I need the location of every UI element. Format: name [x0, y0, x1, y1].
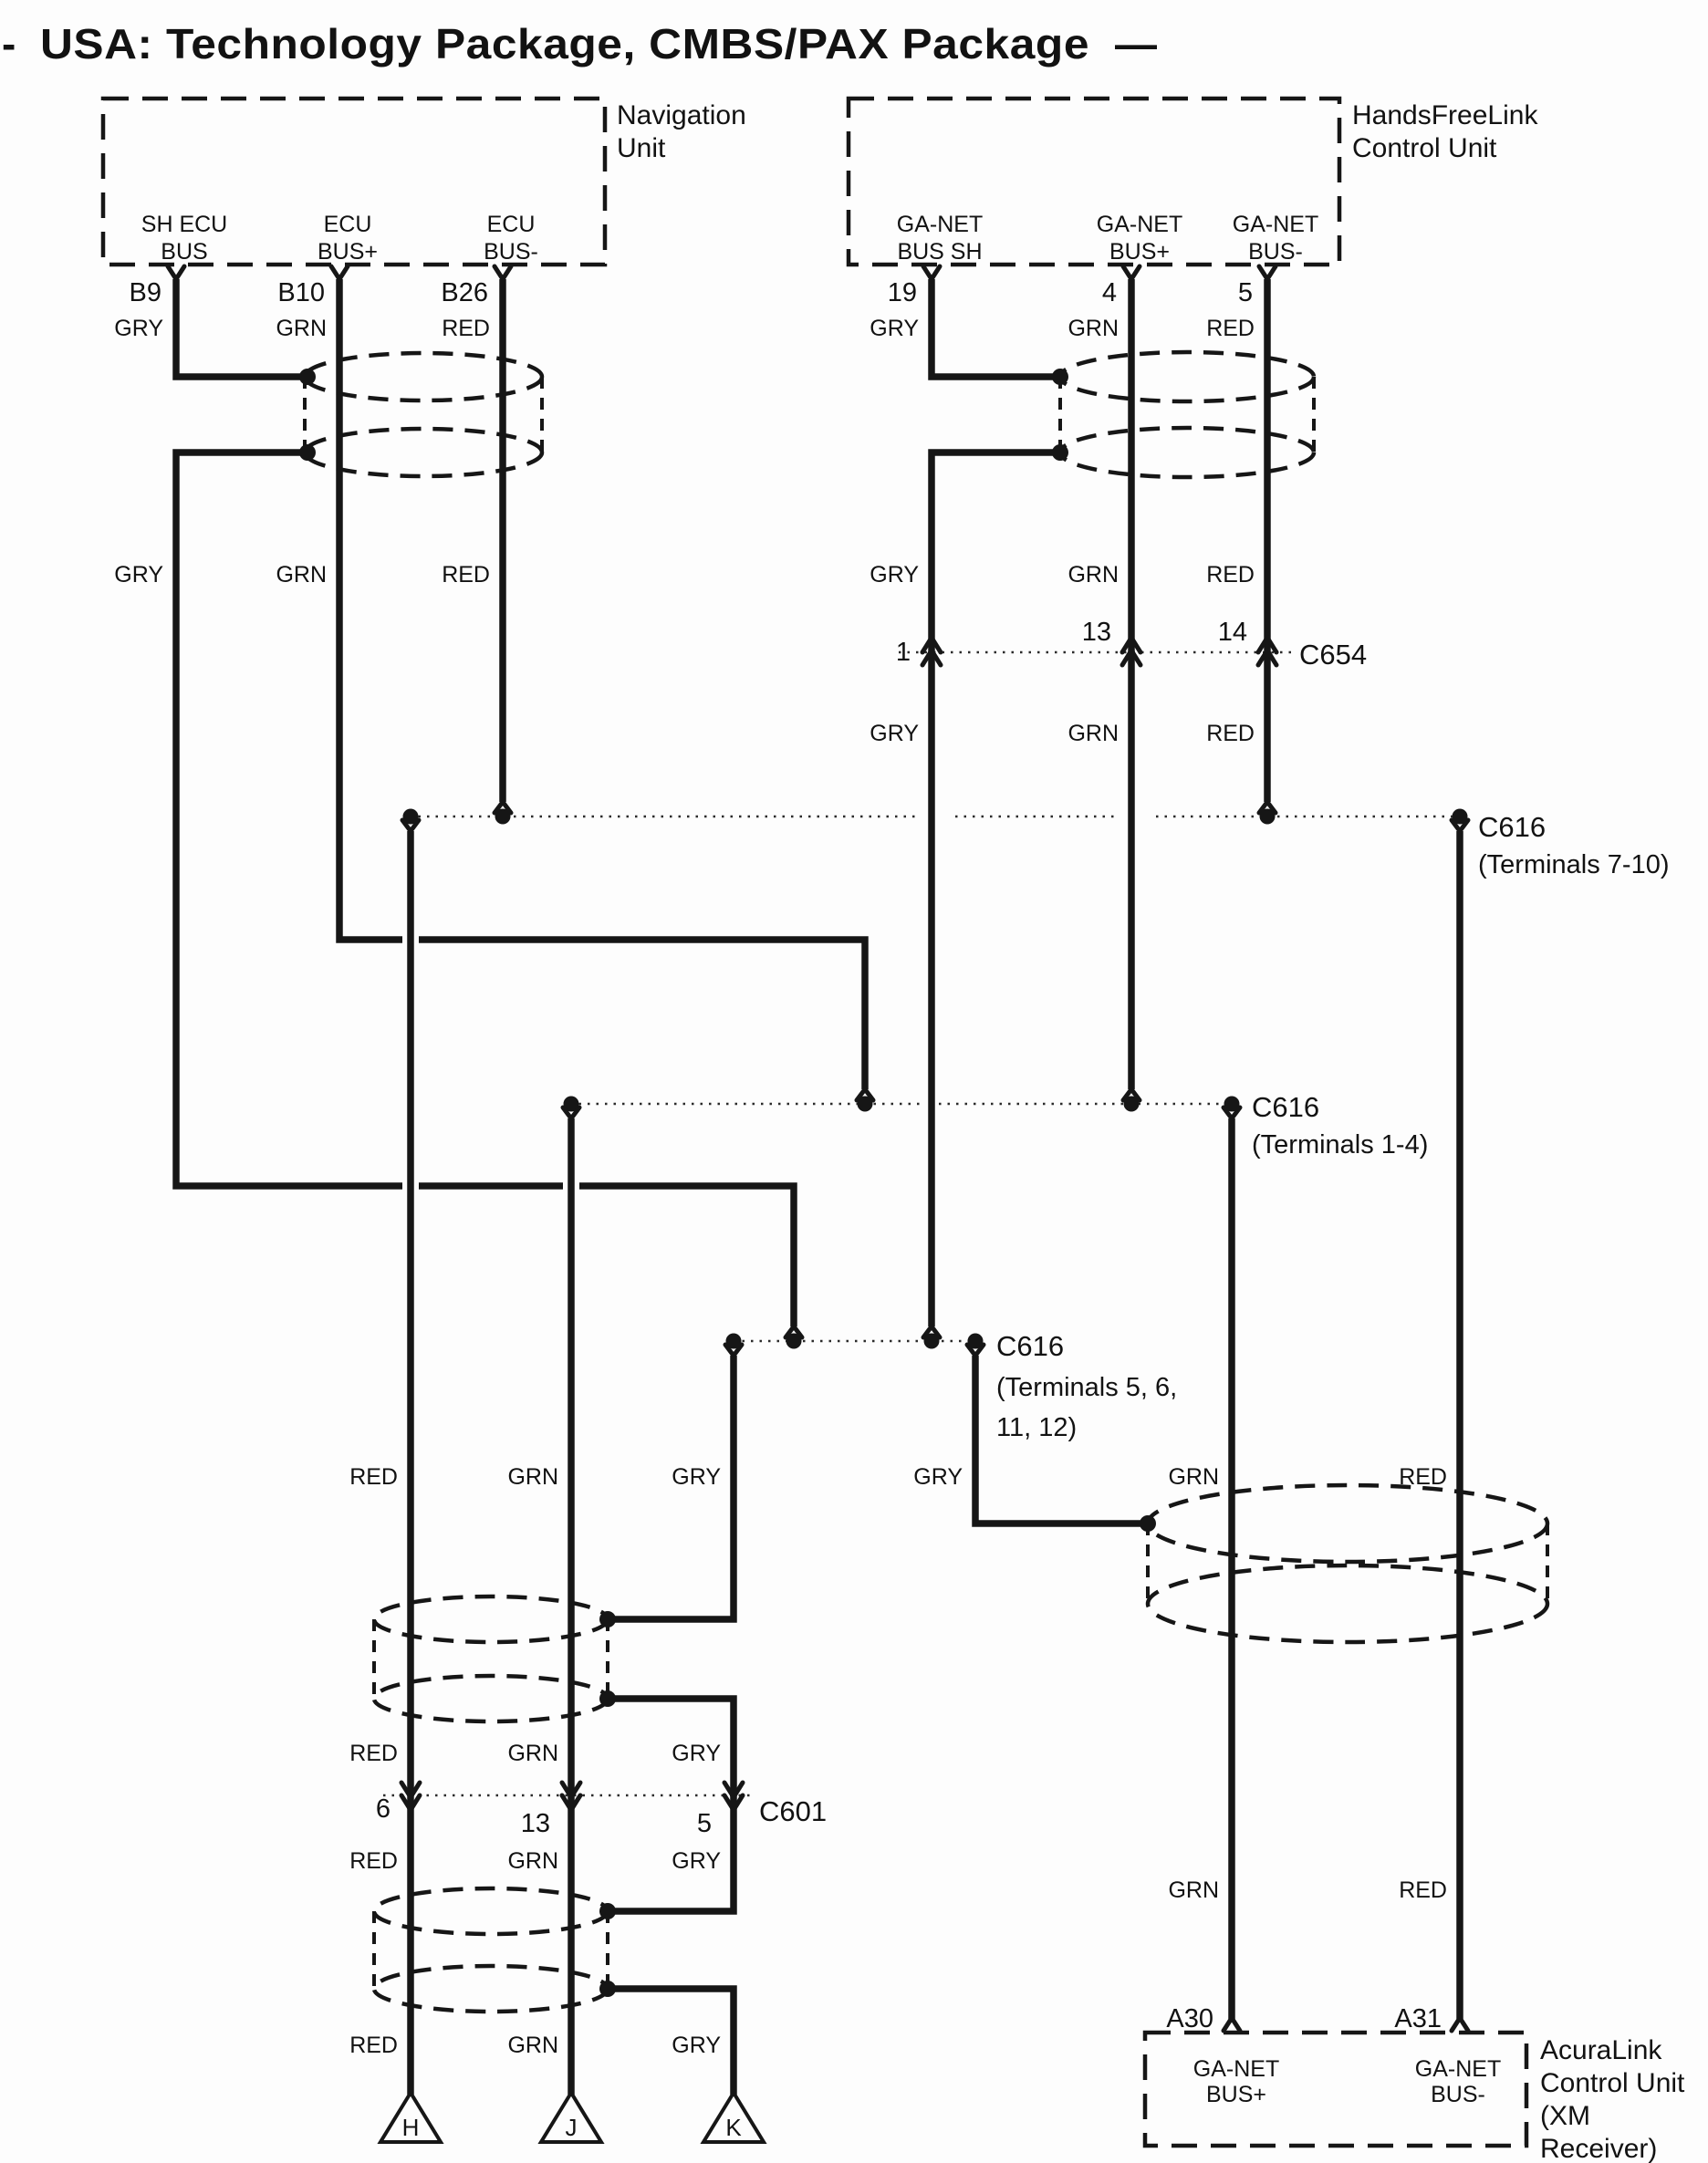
wire-color-label: RED — [1206, 316, 1255, 341]
nav-pin-b9-bus-line2: BUS — [161, 239, 207, 265]
wiring-diagram-page: - USA: Technology Package, CMBS/PAX Pack… — [0, 0, 1708, 2163]
wiring-diagram: - USA: Technology Package, CMBS/PAX Pack… — [0, 0, 1708, 2163]
acuralink-pin-a30: A30 — [1166, 2004, 1213, 2033]
ground-triangle-h-label: H — [402, 2114, 420, 2141]
c616-red-terminals: (Terminals 7-10) — [1478, 850, 1670, 879]
wire-gry-handsfreelink-shield — [932, 279, 1056, 1326]
ground-triangle-k-label: K — [725, 2114, 742, 2141]
c654-label: C654 — [1299, 639, 1367, 671]
c616-gry-terminals-line2: 11, 12) — [996, 1413, 1077, 1442]
wire-color-label: GRN — [276, 562, 327, 588]
acuralink-name-line2: Control Unit — [1540, 2068, 1685, 2098]
wire-color-label: GRY — [672, 1464, 721, 1490]
c601-label: C601 — [759, 1795, 827, 1827]
hfl-pin-19-bus-line2: BUS SH — [897, 239, 982, 265]
wire-color-label: GRN — [276, 316, 327, 341]
wire-color-label: GRN — [1067, 316, 1119, 341]
wire-color-label: GRN — [1168, 1464, 1219, 1490]
nav-pin-b26: B26 — [441, 278, 488, 307]
acuralink-a30-bus-line2: BUS+ — [1206, 2082, 1266, 2107]
ground-triangle-h: H — [380, 2093, 441, 2142]
acuralink-a31-bus-line2: BUS- — [1431, 2082, 1485, 2107]
navigation-unit-name-line1: Navigation — [617, 100, 746, 130]
acuralink-a31-bus-line1: GA-NET — [1415, 2056, 1501, 2082]
wire-color-label: GRN — [507, 1848, 558, 1874]
acuralink-pin-a31: A31 — [1394, 2004, 1442, 2033]
wire-color-label: RED — [1206, 562, 1255, 588]
wire-color-label: GRY — [672, 2033, 721, 2058]
wire-color-label: GRY — [870, 316, 919, 341]
acuralink-unit: A30 A31 GA-NET BUS+ GA-NET BUS- AcuraLin… — [1145, 2004, 1685, 2163]
c654-pin-13: 13 — [1082, 618, 1111, 647]
wire-color-label: GRN — [507, 1741, 558, 1766]
wire-color-label: RED — [349, 1848, 398, 1874]
hfl-unit-name-line2: Control Unit — [1352, 133, 1497, 163]
title-prefix-dash: - — [2, 20, 16, 68]
nav-pin-b10-bus-line1: ECU — [324, 212, 372, 237]
hfl-pin-19-bus-line1: GA-NET — [897, 212, 983, 237]
ground-triangle-k: K — [703, 2093, 764, 2142]
nav-pin-b26-bus-line1: ECU — [487, 212, 536, 237]
c601-pin-6: 6 — [376, 1794, 391, 1824]
hfl-unit-name-line1: HandsFreeLink — [1352, 100, 1538, 130]
connector-c616-grn: C616 (Terminals 1-4) — [1252, 1091, 1428, 1159]
c616-grn-terminals: (Terminals 1-4) — [1252, 1130, 1428, 1159]
hfl-pin-5: 5 — [1238, 278, 1253, 307]
hfl-pin-4: 4 — [1102, 278, 1117, 307]
acuralink-name-line3: (XM — [1540, 2101, 1590, 2131]
connector-c601: 6 13 5 C601 — [376, 1794, 827, 1838]
connector-c616-red: C616 (Terminals 7-10) — [1478, 811, 1670, 879]
hfl-pin-19: 19 — [888, 278, 917, 307]
title: - USA: Technology Package, CMBS/PAX Pack… — [2, 20, 1158, 68]
wire-color-label: GRN — [507, 1464, 558, 1490]
c601-pin-5: 5 — [697, 1809, 712, 1838]
wire-color-label: GRY — [114, 562, 163, 588]
wire-color-label: GRN — [1067, 562, 1119, 588]
wire-color-label: GRY — [870, 562, 919, 588]
nav-pin-b10: B10 — [277, 278, 325, 307]
wire-color-label: GRY — [114, 316, 163, 341]
hfl-pin-5-bus-line1: GA-NET — [1233, 212, 1318, 237]
c654-pin-14: 14 — [1218, 618, 1247, 647]
connector-c616-gry: C616 (Terminals 5, 6, 11, 12) — [996, 1330, 1177, 1442]
nav-pin-b9: B9 — [130, 278, 161, 307]
c616-gry-terminals-line1: (Terminals 5, 6, — [996, 1373, 1177, 1402]
nav-pin-b26-bus-line2: BUS- — [484, 239, 538, 265]
wire-color-label: RED — [1399, 1464, 1447, 1490]
acuralink-name-line1: AcuraLink — [1540, 2035, 1662, 2065]
c616-gry-label: C616 — [996, 1330, 1064, 1362]
wire-color-label: GRN — [507, 2033, 558, 2058]
acuralink-a30-bus-line1: GA-NET — [1193, 2056, 1279, 2082]
nav-pin-b10-bus-line2: BUS+ — [318, 239, 378, 265]
wire-color-label: RED — [349, 1464, 398, 1490]
navigation-unit: Navigation Unit SH ECU BUS ECU BUS+ ECU … — [103, 99, 746, 307]
wire-color-label: RED — [442, 316, 490, 341]
junction-glyphs — [402, 802, 1468, 1356]
ground-triangle-j-label: J — [566, 2114, 578, 2141]
acuralink-name-line4: Receiver) — [1540, 2134, 1657, 2163]
nav-pin-b9-bus-line1: SH ECU — [141, 212, 227, 237]
wire-gry-navigation-shield — [176, 279, 794, 1326]
c616-red-label: C616 — [1478, 811, 1546, 843]
wire-color-label: GRY — [672, 1741, 721, 1766]
hfl-pin-4-bus-line2: BUS+ — [1109, 239, 1170, 265]
wire-color-label: GRN — [1168, 1877, 1219, 1903]
wire-color-label: GRY — [672, 1848, 721, 1874]
handsfreelink-unit: HandsFreeLink Control Unit GA-NET BUS SH… — [849, 99, 1538, 307]
title-suffix-dash: — — [1115, 20, 1158, 68]
wire-color-label: GRN — [1067, 721, 1119, 746]
wire-color-label: RED — [349, 1741, 398, 1766]
navigation-unit-name-line2: Unit — [617, 133, 666, 163]
c601-pin-13: 13 — [521, 1809, 550, 1838]
hfl-pin-4-bus-line1: GA-NET — [1097, 212, 1182, 237]
shield-drum-handsfreelink — [1052, 352, 1314, 477]
wire-color-label: GRY — [870, 721, 919, 746]
wire-color-label: GRY — [913, 1464, 963, 1490]
c654-pin-1: 1 — [896, 638, 911, 667]
connector-dotted-lines — [383, 652, 1460, 1795]
page-title: USA: Technology Package, CMBS/PAX Packag… — [40, 20, 1089, 68]
wire-color-label: RED — [442, 562, 490, 588]
shield-drum-acuralink — [1140, 1485, 1547, 1642]
c616-grn-label: C616 — [1252, 1091, 1319, 1123]
wire-color-label: RED — [1206, 721, 1255, 746]
hfl-pin-5-bus-line2: BUS- — [1248, 239, 1303, 265]
wire-color-label: RED — [349, 2033, 398, 2058]
ground-triangle-j: J — [541, 2093, 601, 2142]
wire-color-label: RED — [1399, 1877, 1447, 1903]
